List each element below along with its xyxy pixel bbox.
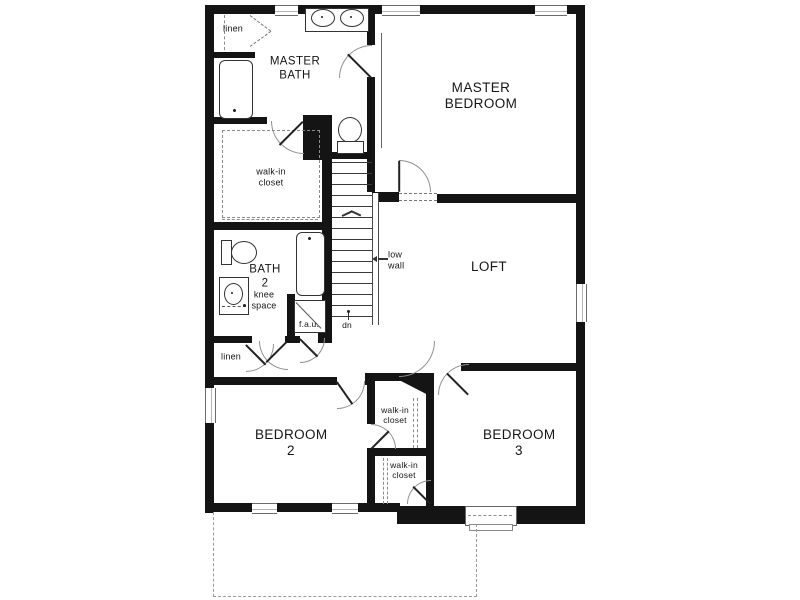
bathtub	[296, 232, 325, 296]
toilet-tank	[337, 141, 364, 154]
closet-shelf-dashed	[383, 458, 384, 504]
room-label-linen-hall: linen	[221, 352, 241, 363]
room-label-bath-2: BATH 2	[248, 263, 283, 290]
sink	[311, 9, 335, 27]
room-label-loft: LOFT	[464, 259, 514, 275]
window	[275, 5, 298, 16]
floor-below-outline	[213, 512, 214, 597]
closet-shelf-dashed	[222, 219, 318, 220]
window	[205, 388, 216, 423]
label-stairs-dn: dn	[342, 320, 352, 330]
room-label-bedroom-2: BEDROOM 2	[255, 427, 327, 459]
room-label-master-bedroom: MASTER BEDROOM	[441, 80, 521, 112]
floor-below-outline	[213, 596, 477, 597]
wall-segment	[367, 385, 375, 424]
window	[252, 503, 277, 514]
window	[535, 5, 567, 16]
dn-marker-line	[348, 313, 349, 320]
wall-segment	[213, 377, 337, 385]
wall-segment	[576, 5, 585, 524]
label-knee-space: knee space	[249, 289, 279, 310]
bedroom-wall-line	[381, 33, 382, 148]
knee-space-leader-dot	[243, 304, 246, 307]
label-low-wall: low wall	[388, 249, 410, 270]
toilet-bowl	[338, 117, 362, 143]
room-label-closet-bedroom2: walk-in closet	[378, 405, 412, 425]
window	[465, 506, 517, 526]
wall-segment	[437, 194, 577, 203]
wall-segment	[367, 448, 431, 456]
bathtub-faucet	[233, 109, 236, 112]
door-arc	[399, 160, 431, 192]
stairs	[332, 162, 372, 323]
room-label-bedroom-3: BEDROOM 3	[483, 427, 555, 459]
wall-segment	[367, 448, 375, 506]
door-arc	[399, 341, 435, 377]
low-wall-leader	[378, 258, 388, 260]
room-label-master-closet: walk-in closet	[254, 166, 288, 187]
wall-segment	[461, 363, 577, 371]
sink	[340, 9, 364, 27]
label-fau: f.a.u.	[299, 319, 319, 329]
bifold-door-line	[250, 31, 272, 47]
sink-drain	[321, 16, 323, 18]
room-label-master-bath: MASTER BATH	[269, 55, 321, 82]
wall-segment	[213, 222, 322, 230]
closet-shelf-dashed	[413, 398, 414, 448]
door-arc	[337, 381, 365, 409]
wall-segment	[213, 336, 252, 343]
sink-drain	[350, 16, 352, 18]
bifold-door-line	[250, 15, 271, 31]
window	[576, 284, 587, 322]
window	[332, 503, 358, 514]
leader-arrow	[372, 256, 377, 262]
toilet-bowl	[231, 241, 257, 264]
threshold-dashed	[399, 193, 437, 194]
wall-segment	[213, 52, 255, 58]
bathtub-faucet	[308, 237, 311, 240]
wall-segment	[205, 5, 214, 513]
window-mullion-dashed	[468, 515, 512, 516]
sink	[224, 283, 243, 305]
floor-plan: linen MASTER BATH MASTER BEDROOM walk-in…	[0, 0, 800, 600]
closet-shelf-dashed	[417, 398, 418, 448]
door-leaf	[398, 161, 400, 192]
bathtub	[219, 60, 253, 119]
room-label-closet-bedroom3: walk-in closet	[387, 460, 421, 480]
floor-below-outline	[476, 524, 477, 597]
room-label-linen-top: linen	[223, 24, 243, 35]
window	[382, 5, 420, 16]
sink-drain	[231, 292, 233, 294]
threshold-dashed	[399, 200, 437, 201]
